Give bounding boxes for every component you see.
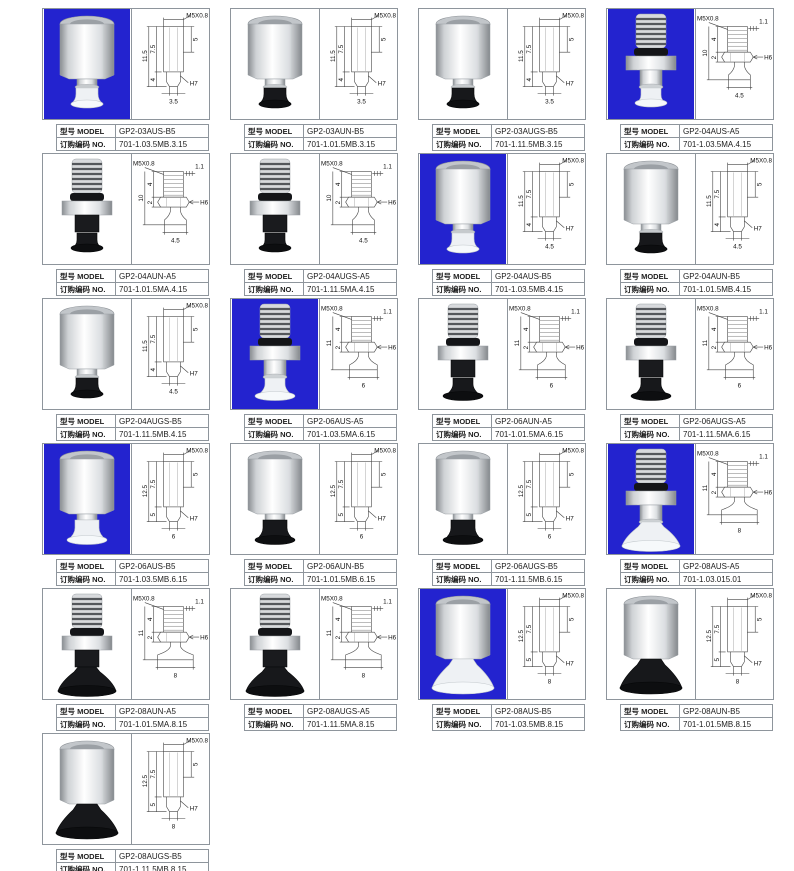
product-card: M5X0.8 11.57.545 H7 4.5 型号 MODEL GP2-04A… bbox=[42, 298, 210, 440]
svg-text:M5X0.8: M5X0.8 bbox=[133, 596, 155, 603]
model-row: 型号 MODEL GP2-06AUN-B5 bbox=[245, 560, 397, 573]
hex-fitting-photo bbox=[607, 589, 695, 699]
order-value: 701-1.01.5MB.8.15 bbox=[680, 718, 773, 731]
hex-fitting-photo bbox=[607, 154, 695, 264]
product-card: M5X0.8 1.1 4211 H6 6 型号 MODEL GP2-06AUGS… bbox=[606, 298, 774, 440]
hex-fitting-photo bbox=[419, 444, 507, 554]
product-photo bbox=[607, 589, 696, 699]
svg-text:H7: H7 bbox=[566, 81, 575, 88]
product-image-box: M5X0.8 1.1 4210 H6 4.5 bbox=[606, 8, 774, 120]
model-row: 型号 MODEL GP2-06AUGS-B5 bbox=[433, 560, 585, 573]
svg-text:5: 5 bbox=[338, 513, 345, 517]
svg-text:H7: H7 bbox=[378, 516, 387, 523]
svg-text:12.5: 12.5 bbox=[706, 629, 713, 642]
stud-fitting-drawing: M5X0.8 1.1 4210 H6 4.5 bbox=[320, 154, 397, 264]
svg-text:M5X0.8: M5X0.8 bbox=[321, 306, 343, 313]
svg-text:11.5: 11.5 bbox=[142, 340, 149, 352]
svg-text:8: 8 bbox=[548, 678, 552, 685]
stud-fitting-photo bbox=[607, 9, 695, 119]
svg-text:6: 6 bbox=[548, 533, 552, 540]
svg-text:2: 2 bbox=[147, 635, 154, 639]
svg-text:M5X0.8: M5X0.8 bbox=[697, 451, 719, 458]
svg-text:6: 6 bbox=[172, 533, 176, 540]
order-label: 订购编码 NO. bbox=[433, 573, 492, 586]
svg-text:5: 5 bbox=[569, 617, 576, 621]
product-card: M5X0.8 1.1 4211 H6 8 型号 MODEL GP2-08AUS-… bbox=[606, 443, 774, 585]
product-grid: M5X0.8 11.57.545 H7 3.5 型号 MODEL GP2-03A… bbox=[0, 0, 794, 871]
svg-text:M5X0.8: M5X0.8 bbox=[186, 448, 208, 455]
hex-fitting-drawing: M5X0.8 12.57.555 H7 8 bbox=[696, 589, 773, 699]
spec-table: 型号 MODEL GP2-08AUS-A5 订购编码 NO. 701-1.03.… bbox=[620, 559, 773, 586]
order-value: 701-1.11.5MB.8.15 bbox=[116, 863, 209, 871]
model-row: 型号 MODEL GP2-08AUGS-A5 bbox=[245, 705, 397, 718]
hex-fitting-photo bbox=[43, 444, 131, 554]
stud-fitting-photo bbox=[231, 589, 319, 699]
hex-fitting-drawing: M5X0.8 12.57.555 H7 6 bbox=[508, 444, 585, 554]
spec-table: 型号 MODEL GP2-04AUGS-A5 订购编码 NO. 701-1.11… bbox=[244, 269, 397, 296]
order-row: 订购编码 NO. 701-1.01.5MA.8.15 bbox=[57, 718, 209, 731]
svg-text:11: 11 bbox=[326, 339, 333, 346]
svg-text:H7: H7 bbox=[566, 226, 575, 233]
hex-fitting-photo bbox=[419, 154, 507, 264]
order-label: 订购编码 NO. bbox=[621, 428, 680, 441]
product-image-box: M5X0.8 1.1 4211 H6 6 bbox=[418, 298, 586, 410]
order-row: 订购编码 NO. 701-1.03.5MB.4.15 bbox=[433, 283, 585, 296]
model-label: 型号 MODEL bbox=[57, 270, 116, 283]
product-image-box: M5X0.8 11.57.545 H7 4.5 bbox=[606, 153, 774, 265]
model-value: GP2-03AUS-B5 bbox=[116, 125, 209, 138]
order-row: 订购编码 NO. 701-1.01.5MB.4.15 bbox=[621, 283, 773, 296]
order-value: 701-1.01.5MA.8.15 bbox=[116, 718, 209, 731]
spec-table: 型号 MODEL GP2-04AUGS-B5 订购编码 NO. 701-1.11… bbox=[56, 414, 209, 441]
dimension-drawing: M5X0.8 12.57.555 H7 6 bbox=[320, 444, 397, 554]
product-photo bbox=[419, 9, 508, 119]
model-row: 型号 MODEL GP2-08AUGS-B5 bbox=[57, 850, 209, 863]
model-label: 型号 MODEL bbox=[245, 415, 304, 428]
order-value: 701-1.01.5MB.4.15 bbox=[680, 283, 773, 296]
svg-text:H7: H7 bbox=[190, 806, 199, 813]
svg-text:H7: H7 bbox=[378, 81, 387, 88]
product-card: M5X0.8 1.1 4211 H6 6 型号 MODEL GP2-06AUS-… bbox=[230, 298, 398, 440]
svg-text:M5X0.8: M5X0.8 bbox=[321, 161, 343, 168]
svg-text:H7: H7 bbox=[190, 81, 199, 88]
model-label: 型号 MODEL bbox=[57, 560, 116, 573]
order-value: 701-1.01.5MA.4.15 bbox=[116, 283, 209, 296]
svg-text:M5X0.8: M5X0.8 bbox=[509, 306, 531, 313]
dimension-drawing: M5X0.8 1.1 4211 H6 6 bbox=[320, 299, 397, 409]
svg-text:M5X0.8: M5X0.8 bbox=[186, 303, 208, 310]
svg-text:4.5: 4.5 bbox=[169, 388, 178, 395]
dimension-drawing: M5X0.8 1.1 4210 H6 4.5 bbox=[320, 154, 397, 264]
model-row: 型号 MODEL GP2-04AUS-A5 bbox=[621, 125, 773, 138]
spec-table: 型号 MODEL GP2-04AUN-B5 订购编码 NO. 701-1.01.… bbox=[620, 269, 773, 296]
hex-fitting-photo bbox=[43, 9, 131, 119]
svg-text:7.5: 7.5 bbox=[714, 624, 721, 633]
stud-fitting-photo bbox=[607, 444, 695, 554]
svg-text:4: 4 bbox=[150, 78, 157, 82]
spec-table: 型号 MODEL GP2-06AUN-B5 订购编码 NO. 701-1.01.… bbox=[244, 559, 397, 586]
svg-text:H6: H6 bbox=[388, 200, 397, 207]
dimension-drawing: M5X0.8 1.1 4210 H6 4.5 bbox=[132, 154, 209, 264]
order-row: 订购编码 NO. 701-1.11.5MB.3.15 bbox=[433, 138, 585, 151]
dimension-drawing: M5X0.8 12.57.555 H7 8 bbox=[508, 589, 585, 699]
hex-fitting-photo bbox=[231, 444, 319, 554]
svg-text:2: 2 bbox=[711, 55, 718, 59]
svg-text:12.5: 12.5 bbox=[330, 484, 337, 497]
svg-text:M5X0.8: M5X0.8 bbox=[697, 16, 719, 23]
spec-table: 型号 MODEL GP2-03AUGS-B5 订购编码 NO. 701-1.11… bbox=[432, 124, 585, 151]
svg-text:5: 5 bbox=[381, 37, 388, 41]
svg-text:10: 10 bbox=[702, 49, 709, 57]
spec-table: 型号 MODEL GP2-08AUN-A5 订购编码 NO. 701-1.01.… bbox=[56, 704, 209, 731]
product-card: M5X0.8 1.1 4211 H6 6 型号 MODEL GP2-06AUN-… bbox=[418, 298, 586, 440]
svg-text:5: 5 bbox=[150, 803, 157, 807]
svg-text:7.5: 7.5 bbox=[714, 189, 721, 198]
spec-table: 型号 MODEL GP2-03AUN-B5 订购编码 NO. 701-1.01.… bbox=[244, 124, 397, 151]
model-value: GP2-06AUS-B5 bbox=[116, 560, 209, 573]
svg-text:4.5: 4.5 bbox=[733, 243, 742, 250]
svg-text:5: 5 bbox=[569, 182, 576, 186]
product-card: M5X0.8 11.57.545 H7 4.5 型号 MODEL GP2-04A… bbox=[606, 153, 774, 295]
spec-table: 型号 MODEL GP2-08AUS-B5 订购编码 NO. 701-1.03.… bbox=[432, 704, 585, 731]
svg-text:H7: H7 bbox=[754, 226, 763, 233]
model-row: 型号 MODEL GP2-08AUN-B5 bbox=[621, 705, 773, 718]
model-value: GP2-08AUGS-B5 bbox=[116, 850, 209, 863]
order-label: 订购编码 NO. bbox=[57, 138, 116, 151]
svg-text:5: 5 bbox=[193, 762, 200, 766]
order-value: 701-1.03.5MB.8.15 bbox=[492, 718, 585, 731]
model-label: 型号 MODEL bbox=[57, 705, 116, 718]
svg-text:1.1: 1.1 bbox=[759, 309, 768, 316]
spec-table: 型号 MODEL GP2-06AUN-A5 订购编码 NO. 701-1.01.… bbox=[432, 414, 585, 441]
svg-text:M5X0.8: M5X0.8 bbox=[374, 448, 396, 455]
spec-table: 型号 MODEL GP2-06AUGS-B5 订购编码 NO. 701-1.11… bbox=[432, 559, 585, 586]
model-value: GP2-06AUGS-B5 bbox=[492, 560, 585, 573]
order-label: 订购编码 NO. bbox=[57, 718, 116, 731]
product-card: M5X0.8 11.57.545 H7 3.5 型号 MODEL GP2-03A… bbox=[230, 8, 398, 150]
svg-text:2: 2 bbox=[711, 490, 718, 494]
model-row: 型号 MODEL GP2-04AUN-B5 bbox=[621, 270, 773, 283]
svg-text:12.5: 12.5 bbox=[142, 774, 149, 787]
svg-text:M5X0.8: M5X0.8 bbox=[321, 596, 343, 603]
model-label: 型号 MODEL bbox=[245, 705, 304, 718]
svg-text:H6: H6 bbox=[576, 345, 585, 352]
svg-text:H6: H6 bbox=[764, 55, 773, 62]
hex-fitting-drawing: M5X0.8 11.57.545 H7 3.5 bbox=[320, 9, 397, 119]
model-value: GP2-04AUGS-B5 bbox=[116, 415, 209, 428]
product-image-box: M5X0.8 1.1 4210 H6 4.5 bbox=[230, 153, 398, 265]
dimension-drawing: M5X0.8 12.57.555 H7 6 bbox=[132, 444, 209, 554]
order-value: 701-1.11.5MA.6.15 bbox=[680, 428, 773, 441]
model-value: GP2-04AUS-A5 bbox=[680, 125, 773, 138]
model-value: GP2-04AUGS-A5 bbox=[304, 270, 397, 283]
product-card: M5X0.8 12.57.555 H7 8 型号 MODEL GP2-08AUS… bbox=[418, 588, 586, 730]
model-label: 型号 MODEL bbox=[245, 560, 304, 573]
product-card: M5X0.8 12.57.555 H7 6 型号 MODEL GP2-06AUG… bbox=[418, 443, 586, 585]
hex-fitting-drawing: M5X0.8 12.57.555 H7 6 bbox=[320, 444, 397, 554]
order-label: 订购编码 NO. bbox=[433, 138, 492, 151]
order-row: 订购编码 NO. 701-1.11.5MB.6.15 bbox=[433, 573, 585, 586]
svg-text:7.5: 7.5 bbox=[338, 479, 345, 488]
dimension-drawing: M5X0.8 1.1 4210 H6 4.5 bbox=[696, 9, 773, 119]
order-row: 订购编码 NO. 701-1.01.5MB.6.15 bbox=[245, 573, 397, 586]
stud-fitting-photo bbox=[43, 154, 131, 264]
hex-fitting-drawing: M5X0.8 11.57.545 H7 3.5 bbox=[132, 9, 209, 119]
order-row: 订购编码 NO. 701-1.03.5MB.3.15 bbox=[57, 138, 209, 151]
svg-text:7.5: 7.5 bbox=[150, 334, 157, 343]
product-photo bbox=[419, 299, 508, 409]
order-value: 701-1.03.5MB.4.15 bbox=[492, 283, 585, 296]
order-row: 订购编码 NO. 701-1.01.5MA.4.15 bbox=[57, 283, 209, 296]
svg-text:H6: H6 bbox=[200, 200, 209, 207]
spec-table: 型号 MODEL GP2-04AUS-A5 订购编码 NO. 701-1.03.… bbox=[620, 124, 773, 151]
product-image-box: M5X0.8 11.57.545 H7 4.5 bbox=[42, 298, 210, 410]
order-row: 订购编码 NO. 701-1.11.5MA.8.15 bbox=[245, 718, 397, 731]
model-row: 型号 MODEL GP2-08AUS-B5 bbox=[433, 705, 585, 718]
product-card: M5X0.8 11.57.545 H7 3.5 型号 MODEL GP2-03A… bbox=[42, 8, 210, 150]
svg-text:8: 8 bbox=[172, 823, 176, 830]
spec-table: 型号 MODEL GP2-03AUS-B5 订购编码 NO. 701-1.03.… bbox=[56, 124, 209, 151]
order-row: 订购编码 NO. 701-1.03.015.01 bbox=[621, 573, 773, 586]
svg-text:2: 2 bbox=[335, 635, 342, 639]
product-image-box: M5X0.8 11.57.545 H7 4.5 bbox=[418, 153, 586, 265]
model-label: 型号 MODEL bbox=[621, 270, 680, 283]
stud-fitting-photo bbox=[419, 299, 507, 409]
model-row: 型号 MODEL GP2-08AUN-A5 bbox=[57, 705, 209, 718]
product-card: M5X0.8 12.57.555 H7 6 型号 MODEL GP2-06AUS… bbox=[42, 443, 210, 585]
product-photo bbox=[43, 444, 132, 554]
svg-text:4: 4 bbox=[335, 182, 342, 186]
product-photo bbox=[419, 154, 508, 264]
order-label: 订购编码 NO. bbox=[621, 573, 680, 586]
dimension-drawing: M5X0.8 1.1 4211 H6 8 bbox=[696, 444, 773, 554]
svg-text:6: 6 bbox=[362, 383, 366, 390]
svg-text:1.1: 1.1 bbox=[759, 19, 768, 26]
dimension-drawing: M5X0.8 11.57.545 H7 4.5 bbox=[508, 154, 585, 264]
svg-text:M5X0.8: M5X0.8 bbox=[562, 13, 584, 20]
model-row: 型号 MODEL GP2-06AUS-A5 bbox=[245, 415, 397, 428]
svg-text:5: 5 bbox=[569, 472, 576, 476]
svg-text:M5X0.8: M5X0.8 bbox=[133, 161, 155, 168]
svg-text:4: 4 bbox=[711, 327, 718, 331]
order-value: 701-1.11.5MB.4.15 bbox=[116, 428, 209, 441]
order-label: 订购编码 NO. bbox=[433, 428, 492, 441]
spec-table: 型号 MODEL GP2-08AUN-B5 订购编码 NO. 701-1.01.… bbox=[620, 704, 773, 731]
model-row: 型号 MODEL GP2-04AUS-B5 bbox=[433, 270, 585, 283]
order-label: 订购编码 NO. bbox=[433, 718, 492, 731]
spec-table: 型号 MODEL GP2-04AUS-B5 订购编码 NO. 701-1.03.… bbox=[432, 269, 585, 296]
hex-fitting-drawing: M5X0.8 11.57.545 H7 4.5 bbox=[508, 154, 585, 264]
product-card: M5X0.8 12.57.555 H7 6 型号 MODEL GP2-06AUN… bbox=[230, 443, 398, 585]
order-label: 订购编码 NO. bbox=[245, 573, 304, 586]
model-label: 型号 MODEL bbox=[621, 560, 680, 573]
svg-text:7.5: 7.5 bbox=[150, 479, 157, 488]
model-value: GP2-08AUGS-A5 bbox=[304, 705, 397, 718]
stud-fitting-photo bbox=[231, 154, 319, 264]
svg-text:5: 5 bbox=[757, 617, 764, 621]
spec-table: 型号 MODEL GP2-06AUGS-A5 订购编码 NO. 701-1.11… bbox=[620, 414, 773, 441]
svg-text:H6: H6 bbox=[200, 635, 209, 642]
product-photo bbox=[43, 154, 132, 264]
order-value: 701-1.03.5MB.3.15 bbox=[116, 138, 209, 151]
order-value: 701-1.01.5MA.6.15 bbox=[492, 428, 585, 441]
model-label: 型号 MODEL bbox=[433, 560, 492, 573]
svg-text:H7: H7 bbox=[190, 371, 199, 378]
hex-fitting-photo bbox=[419, 9, 507, 119]
spec-table: 型号 MODEL GP2-06AUS-A5 订购编码 NO. 701-1.03.… bbox=[244, 414, 397, 441]
order-label: 订购编码 NO. bbox=[245, 283, 304, 296]
svg-text:7.5: 7.5 bbox=[526, 44, 533, 53]
model-row: 型号 MODEL GP2-06AUS-B5 bbox=[57, 560, 209, 573]
hex-fitting-photo bbox=[43, 734, 131, 844]
svg-text:5: 5 bbox=[714, 658, 721, 662]
order-row: 订购编码 NO. 701-1.03.5MB.8.15 bbox=[433, 718, 585, 731]
model-label: 型号 MODEL bbox=[433, 125, 492, 138]
hex-fitting-drawing: M5X0.8 11.57.545 H7 4.5 bbox=[132, 299, 209, 409]
svg-text:4: 4 bbox=[526, 78, 533, 82]
product-image-box: M5X0.8 12.57.555 H7 6 bbox=[230, 443, 398, 555]
product-photo bbox=[231, 154, 320, 264]
order-value: 701-1.03.5MA.6.15 bbox=[304, 428, 397, 441]
model-row: 型号 MODEL GP2-03AUGS-B5 bbox=[433, 125, 585, 138]
product-image-box: M5X0.8 1.1 4210 H6 4.5 bbox=[42, 153, 210, 265]
order-value: 701-1.11.5MB.6.15 bbox=[492, 573, 585, 586]
svg-text:2: 2 bbox=[147, 200, 154, 204]
svg-text:11.5: 11.5 bbox=[330, 50, 337, 62]
svg-text:6: 6 bbox=[360, 533, 364, 540]
order-label: 订购编码 NO. bbox=[621, 718, 680, 731]
svg-text:5: 5 bbox=[569, 37, 576, 41]
svg-text:H6: H6 bbox=[388, 635, 397, 642]
svg-text:10: 10 bbox=[138, 194, 145, 202]
model-label: 型号 MODEL bbox=[433, 705, 492, 718]
product-image-box: M5X0.8 12.57.555 H7 8 bbox=[418, 588, 586, 700]
model-value: GP2-06AUGS-A5 bbox=[680, 415, 773, 428]
product-photo bbox=[607, 299, 696, 409]
svg-text:M5X0.8: M5X0.8 bbox=[697, 306, 719, 313]
product-photo bbox=[419, 589, 508, 699]
order-label: 订购编码 NO. bbox=[57, 863, 116, 871]
model-label: 型号 MODEL bbox=[245, 270, 304, 283]
hex-fitting-drawing: M5X0.8 12.57.555 H7 8 bbox=[508, 589, 585, 699]
svg-text:H7: H7 bbox=[190, 516, 199, 523]
svg-text:8: 8 bbox=[738, 528, 742, 535]
hex-fitting-drawing: M5X0.8 11.57.545 H7 4.5 bbox=[696, 154, 773, 264]
product-photo bbox=[231, 9, 320, 119]
product-card: M5X0.8 11.57.545 H7 4.5 型号 MODEL GP2-04A… bbox=[418, 153, 586, 295]
order-row: 订购编码 NO. 701-1.11.5MA.4.15 bbox=[245, 283, 397, 296]
svg-text:7.5: 7.5 bbox=[150, 769, 157, 778]
svg-text:M5X0.8: M5X0.8 bbox=[562, 448, 584, 455]
model-row: 型号 MODEL GP2-04AUGS-A5 bbox=[245, 270, 397, 283]
order-row: 订购编码 NO. 701-1.11.5MB.8.15 bbox=[57, 863, 209, 871]
model-value: GP2-04AUS-B5 bbox=[492, 270, 585, 283]
hex-fitting-drawing: M5X0.8 12.57.555 H7 6 bbox=[132, 444, 209, 554]
model-label: 型号 MODEL bbox=[57, 415, 116, 428]
order-row: 订购编码 NO. 701-1.03.5MA.6.15 bbox=[245, 428, 397, 441]
dimension-drawing: M5X0.8 11.57.545 H7 3.5 bbox=[508, 9, 585, 119]
model-row: 型号 MODEL GP2-03AUN-B5 bbox=[245, 125, 397, 138]
order-row: 订购编码 NO. 701-1.03.5MA.4.15 bbox=[621, 138, 773, 151]
model-label: 型号 MODEL bbox=[57, 850, 116, 863]
product-photo bbox=[607, 9, 696, 119]
svg-text:3.5: 3.5 bbox=[169, 98, 178, 105]
product-image-box: M5X0.8 11.57.545 H7 3.5 bbox=[230, 8, 398, 120]
order-value: 701-1.03.5MA.4.15 bbox=[680, 138, 773, 151]
svg-text:4: 4 bbox=[150, 368, 157, 372]
model-label: 型号 MODEL bbox=[621, 705, 680, 718]
order-label: 订购编码 NO. bbox=[57, 283, 116, 296]
product-image-box: M5X0.8 12.57.555 H7 6 bbox=[418, 443, 586, 555]
order-value: 701-1.01.5MB.6.15 bbox=[304, 573, 397, 586]
order-value: 701-1.11.5MA.8.15 bbox=[304, 718, 397, 731]
order-label: 订购编码 NO. bbox=[621, 283, 680, 296]
svg-text:11: 11 bbox=[138, 629, 145, 636]
hex-fitting-drawing: M5X0.8 11.57.545 H7 3.5 bbox=[508, 9, 585, 119]
model-label: 型号 MODEL bbox=[621, 125, 680, 138]
order-row: 订购编码 NO. 701-1.01.5MB.3.15 bbox=[245, 138, 397, 151]
spec-table: 型号 MODEL GP2-06AUS-B5 订购编码 NO. 701-1.03.… bbox=[56, 559, 209, 586]
order-label: 订购编码 NO. bbox=[57, 573, 116, 586]
model-value: GP2-08AUS-B5 bbox=[492, 705, 585, 718]
svg-text:3.5: 3.5 bbox=[357, 98, 366, 105]
product-image-box: M5X0.8 1.1 4211 H6 6 bbox=[230, 298, 398, 410]
svg-text:5: 5 bbox=[381, 472, 388, 476]
hex-fitting-drawing: M5X0.8 12.57.555 H7 8 bbox=[132, 734, 209, 844]
svg-text:1.1: 1.1 bbox=[383, 309, 392, 316]
svg-text:2: 2 bbox=[335, 345, 342, 349]
svg-text:5: 5 bbox=[526, 513, 533, 517]
svg-text:7.5: 7.5 bbox=[526, 479, 533, 488]
stud-fitting-drawing: M5X0.8 1.1 4211 H6 8 bbox=[320, 589, 397, 699]
model-value: GP2-03AUGS-B5 bbox=[492, 125, 585, 138]
stud-fitting-drawing: M5X0.8 1.1 4211 H6 6 bbox=[508, 299, 585, 409]
product-photo bbox=[607, 154, 696, 264]
svg-text:M5X0.8: M5X0.8 bbox=[562, 158, 584, 165]
product-image-box: M5X0.8 12.57.555 H7 6 bbox=[42, 443, 210, 555]
product-card: M5X0.8 1.1 4210 H6 4.5 型号 MODEL GP2-04AU… bbox=[42, 153, 210, 295]
svg-text:11.5: 11.5 bbox=[518, 50, 525, 62]
model-value: GP2-04AUN-B5 bbox=[680, 270, 773, 283]
product-card: M5X0.8 1.1 4211 H6 8 型号 MODEL GP2-08AUN-… bbox=[42, 588, 210, 730]
stud-fitting-drawing: M5X0.8 1.1 4211 H6 6 bbox=[320, 299, 397, 409]
product-photo bbox=[231, 589, 320, 699]
product-card: M5X0.8 12.57.555 H7 8 型号 MODEL GP2-08AUG… bbox=[42, 733, 210, 871]
dimension-drawing: M5X0.8 11.57.545 H7 3.5 bbox=[132, 9, 209, 119]
dimension-drawing: M5X0.8 11.57.545 H7 4.5 bbox=[132, 299, 209, 409]
svg-text:8: 8 bbox=[362, 673, 366, 680]
order-label: 订购编码 NO. bbox=[245, 138, 304, 151]
svg-text:M5X0.8: M5X0.8 bbox=[374, 13, 396, 20]
product-image-box: M5X0.8 11.57.545 H7 3.5 bbox=[42, 8, 210, 120]
catalog-page: M5X0.8 11.57.545 H7 3.5 型号 MODEL GP2-03A… bbox=[0, 0, 794, 871]
svg-text:4.5: 4.5 bbox=[545, 243, 554, 250]
product-photo bbox=[419, 444, 508, 554]
model-value: GP2-08AUS-A5 bbox=[680, 560, 773, 573]
svg-text:M5X0.8: M5X0.8 bbox=[186, 738, 208, 745]
model-value: GP2-08AUN-A5 bbox=[116, 705, 209, 718]
order-row: 订购编码 NO. 701-1.11.5MA.6.15 bbox=[621, 428, 773, 441]
product-image-box: M5X0.8 12.57.555 H7 8 bbox=[606, 588, 774, 700]
hex-fitting-photo bbox=[231, 9, 319, 119]
product-photo bbox=[607, 444, 696, 554]
model-label: 型号 MODEL bbox=[433, 415, 492, 428]
svg-text:10: 10 bbox=[326, 194, 333, 202]
svg-text:4: 4 bbox=[526, 223, 533, 227]
order-row: 订购编码 NO. 701-1.03.5MB.6.15 bbox=[57, 573, 209, 586]
order-label: 订购编码 NO. bbox=[621, 138, 680, 151]
order-label: 订购编码 NO. bbox=[433, 283, 492, 296]
